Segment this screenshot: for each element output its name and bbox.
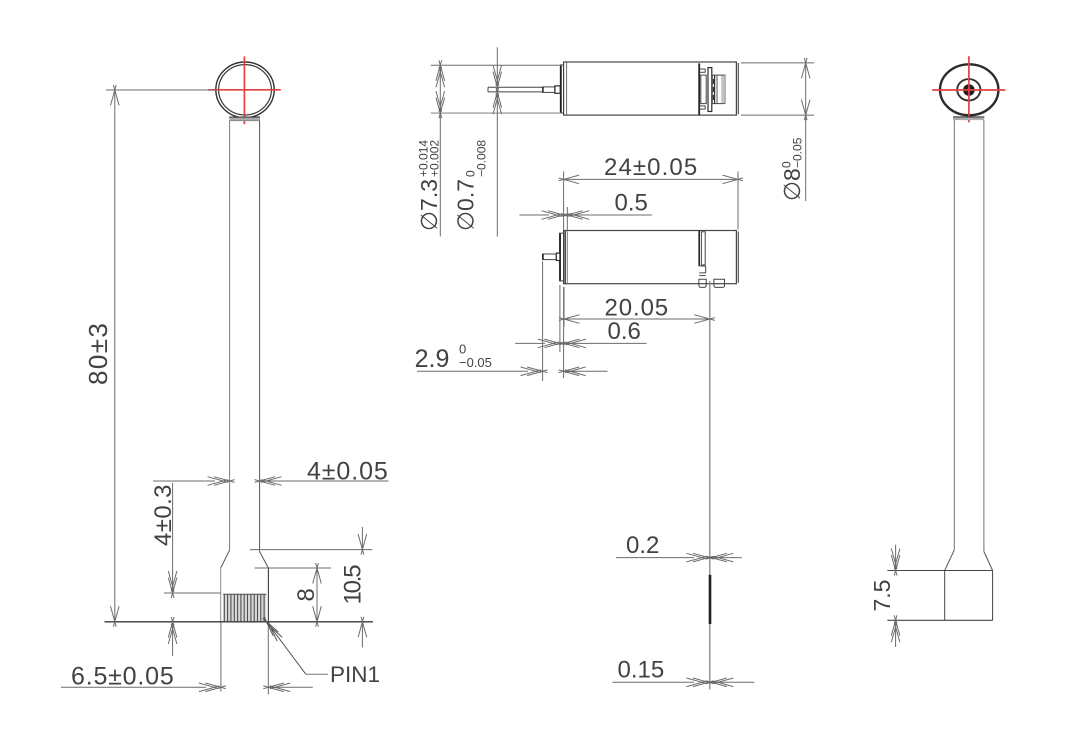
svg-text:10.5: 10.5 [340,565,367,605]
svg-text:4±0.3: 4±0.3 [150,484,177,546]
svg-text:7.5: 7.5 [869,580,895,612]
svg-text:24±0.05: 24±0.05 [604,154,698,181]
svg-text:80±3: 80±3 [83,322,113,385]
svg-text:−0.05: −0.05 [459,355,492,370]
svg-text:∅7.3: ∅7.3 [416,179,442,231]
svg-text:8: 8 [293,588,320,601]
svg-text:PIN1: PIN1 [330,662,380,687]
svg-text:+0.002: +0.002 [428,140,442,177]
svg-text:0.5: 0.5 [615,190,648,217]
svg-text:∅8: ∅8 [779,168,805,201]
svg-text:0.2: 0.2 [626,532,659,559]
svg-text:−0.008: −0.008 [475,140,489,177]
svg-text:∅0.7: ∅0.7 [453,179,479,231]
svg-text:2.9: 2.9 [415,345,450,373]
svg-text:−0.05: −0.05 [791,137,805,168]
svg-text:0.6: 0.6 [608,318,641,345]
svg-text:6.5±0.05: 6.5±0.05 [71,663,175,691]
svg-text:0.15: 0.15 [618,657,665,684]
